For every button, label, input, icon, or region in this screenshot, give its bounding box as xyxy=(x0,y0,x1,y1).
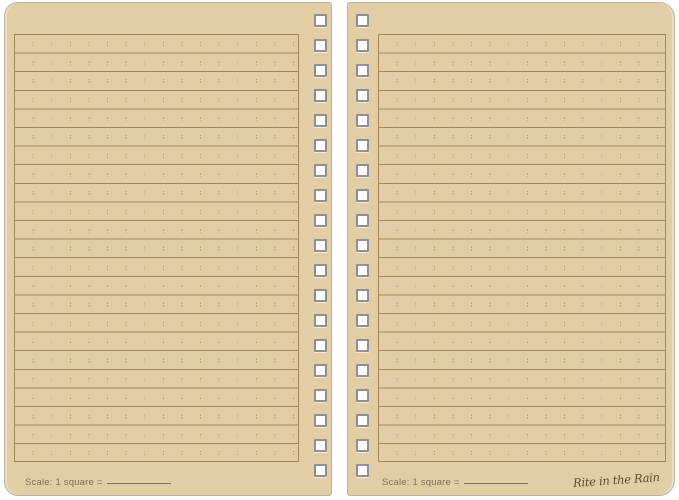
scale-row: Scale: 1 square = xyxy=(382,477,528,488)
binding-hole xyxy=(314,214,327,227)
notebook-right-page: Scale: 1 square = Rite in the Rain xyxy=(347,2,675,496)
binding-hole xyxy=(356,39,369,52)
binding-hole xyxy=(314,264,327,277)
scale-blank-line xyxy=(107,483,171,484)
binding-hole xyxy=(314,339,327,352)
binding-hole xyxy=(314,189,327,202)
notebook-left-page: Scale: 1 square = xyxy=(4,2,332,496)
notebook-spread-photo: Scale: 1 square = Scale: 1 square = Rite… xyxy=(0,0,679,500)
binding-hole xyxy=(314,114,327,127)
binding-hole xyxy=(356,89,369,102)
binding-hole xyxy=(356,389,369,402)
scale-label: Scale: 1 square = xyxy=(382,477,460,488)
binding-hole xyxy=(356,314,369,327)
binding-hole xyxy=(356,414,369,427)
binding-hole xyxy=(356,64,369,77)
binding-hole xyxy=(356,214,369,227)
binding-hole xyxy=(314,289,327,302)
binding-hole xyxy=(314,64,327,77)
scale-blank-line xyxy=(464,483,528,484)
binding-hole xyxy=(356,289,369,302)
binding-hole xyxy=(314,414,327,427)
binding-hole xyxy=(314,464,327,477)
binding-hole xyxy=(356,114,369,127)
binding-hole xyxy=(314,364,327,377)
binding-hole xyxy=(356,14,369,27)
binding-hole xyxy=(314,239,327,252)
binding-hole xyxy=(356,464,369,477)
scale-row: Scale: 1 square = xyxy=(25,477,171,488)
binding-hole xyxy=(314,14,327,27)
binding-hole xyxy=(314,89,327,102)
ruled-grid-left xyxy=(14,34,299,462)
binding-hole xyxy=(314,389,327,402)
binding-hole xyxy=(314,164,327,177)
binding-holes-right xyxy=(356,14,369,489)
brand-signature: Rite in the Rain xyxy=(573,470,660,490)
binding-holes-left xyxy=(314,14,327,489)
binding-hole xyxy=(356,439,369,452)
binding-hole xyxy=(314,39,327,52)
binding-hole xyxy=(356,164,369,177)
binding-hole xyxy=(314,439,327,452)
binding-hole xyxy=(356,364,369,377)
ruled-grid-right xyxy=(378,34,666,462)
binding-hole xyxy=(356,189,369,202)
scale-label: Scale: 1 square = xyxy=(25,477,103,488)
binding-hole xyxy=(314,139,327,152)
binding-hole xyxy=(356,139,369,152)
binding-hole xyxy=(356,264,369,277)
binding-hole xyxy=(356,239,369,252)
binding-hole xyxy=(314,314,327,327)
binding-hole xyxy=(356,339,369,352)
